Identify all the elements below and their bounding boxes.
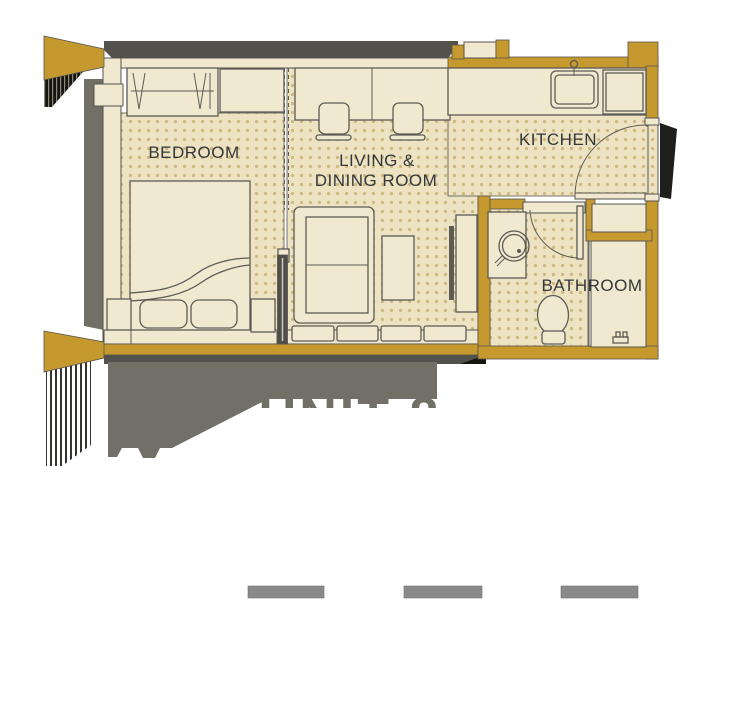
left-shadow-strip (84, 79, 104, 330)
divider-dash (404, 586, 482, 598)
top-right-corner-block (628, 42, 658, 69)
nightstand (107, 299, 131, 330)
window-panel (292, 326, 334, 341)
basin-drain (517, 249, 521, 253)
window-panel (381, 326, 421, 341)
cropped-gray-blob (108, 362, 437, 458)
kitchen-fixtures (448, 61, 646, 116)
toilet-tank (542, 331, 565, 344)
nightstand (251, 299, 275, 332)
kitchen-floor (448, 113, 648, 196)
chair (319, 103, 349, 134)
living-dining-label-line2: DINING ROOM (315, 171, 438, 190)
floor-plan-svg: UNIT 8 (0, 0, 751, 712)
bathroom-door-leaf (577, 206, 583, 259)
divider-dash (561, 586, 638, 598)
top-wall (104, 58, 450, 68)
gold-wedge-top-left (44, 36, 104, 80)
bathroom-niche (592, 204, 646, 232)
bathroom-label: BATHROOM (542, 276, 643, 295)
cropped-unit-caption: UNIT 8 (259, 388, 442, 446)
pillow (191, 300, 237, 328)
window-panel (337, 326, 378, 341)
vanity-counter (488, 212, 526, 278)
tv (449, 226, 454, 300)
entry-niche-recess (464, 42, 496, 58)
entry-door-exterior-shadow (660, 123, 677, 199)
kitchen-appliance (603, 70, 646, 114)
bottom-wall-gold (103, 344, 483, 355)
wardrobe (127, 68, 218, 116)
entry-door-cap (645, 118, 659, 125)
chair-base (316, 135, 351, 140)
chair (393, 103, 423, 134)
entry-niche-left (452, 45, 464, 59)
coffee-table (382, 236, 414, 300)
corner-hatch-bottom-left (46, 361, 91, 466)
chair-base (390, 135, 425, 140)
cabinet (220, 69, 284, 112)
bathroom-top-wall (490, 199, 525, 209)
right-wall-upper (646, 66, 658, 126)
pillow (140, 300, 187, 328)
bathroom-bottom-wall (478, 346, 658, 359)
window-sill-band (104, 330, 478, 344)
floor-plan-image: UNIT 8 (0, 0, 751, 712)
right-wall-lower (646, 196, 658, 359)
left-wall-step (94, 84, 123, 106)
bathroom-door-sill (523, 202, 585, 213)
window-panel (424, 326, 466, 341)
bedroom-label: BEDROOM (148, 143, 239, 162)
unit-plan: BEDROOM LIVING & DINING ROOM KITCHEN BAT… (94, 40, 659, 359)
entry-door-leaf (648, 124, 658, 196)
divider-dash (248, 586, 324, 598)
top-shadow-band (104, 41, 458, 58)
kitchen-label: KITCHEN (519, 130, 597, 149)
dashed-divider (248, 586, 638, 598)
top-wall-gold (448, 57, 658, 69)
entry-door-cap (645, 194, 659, 201)
toilet-bowl (538, 296, 569, 335)
tv-console (456, 215, 477, 312)
entry-door-sill (575, 193, 646, 199)
entry-niche-right (496, 40, 509, 58)
living-dining-label-line1: LIVING & (339, 151, 415, 170)
